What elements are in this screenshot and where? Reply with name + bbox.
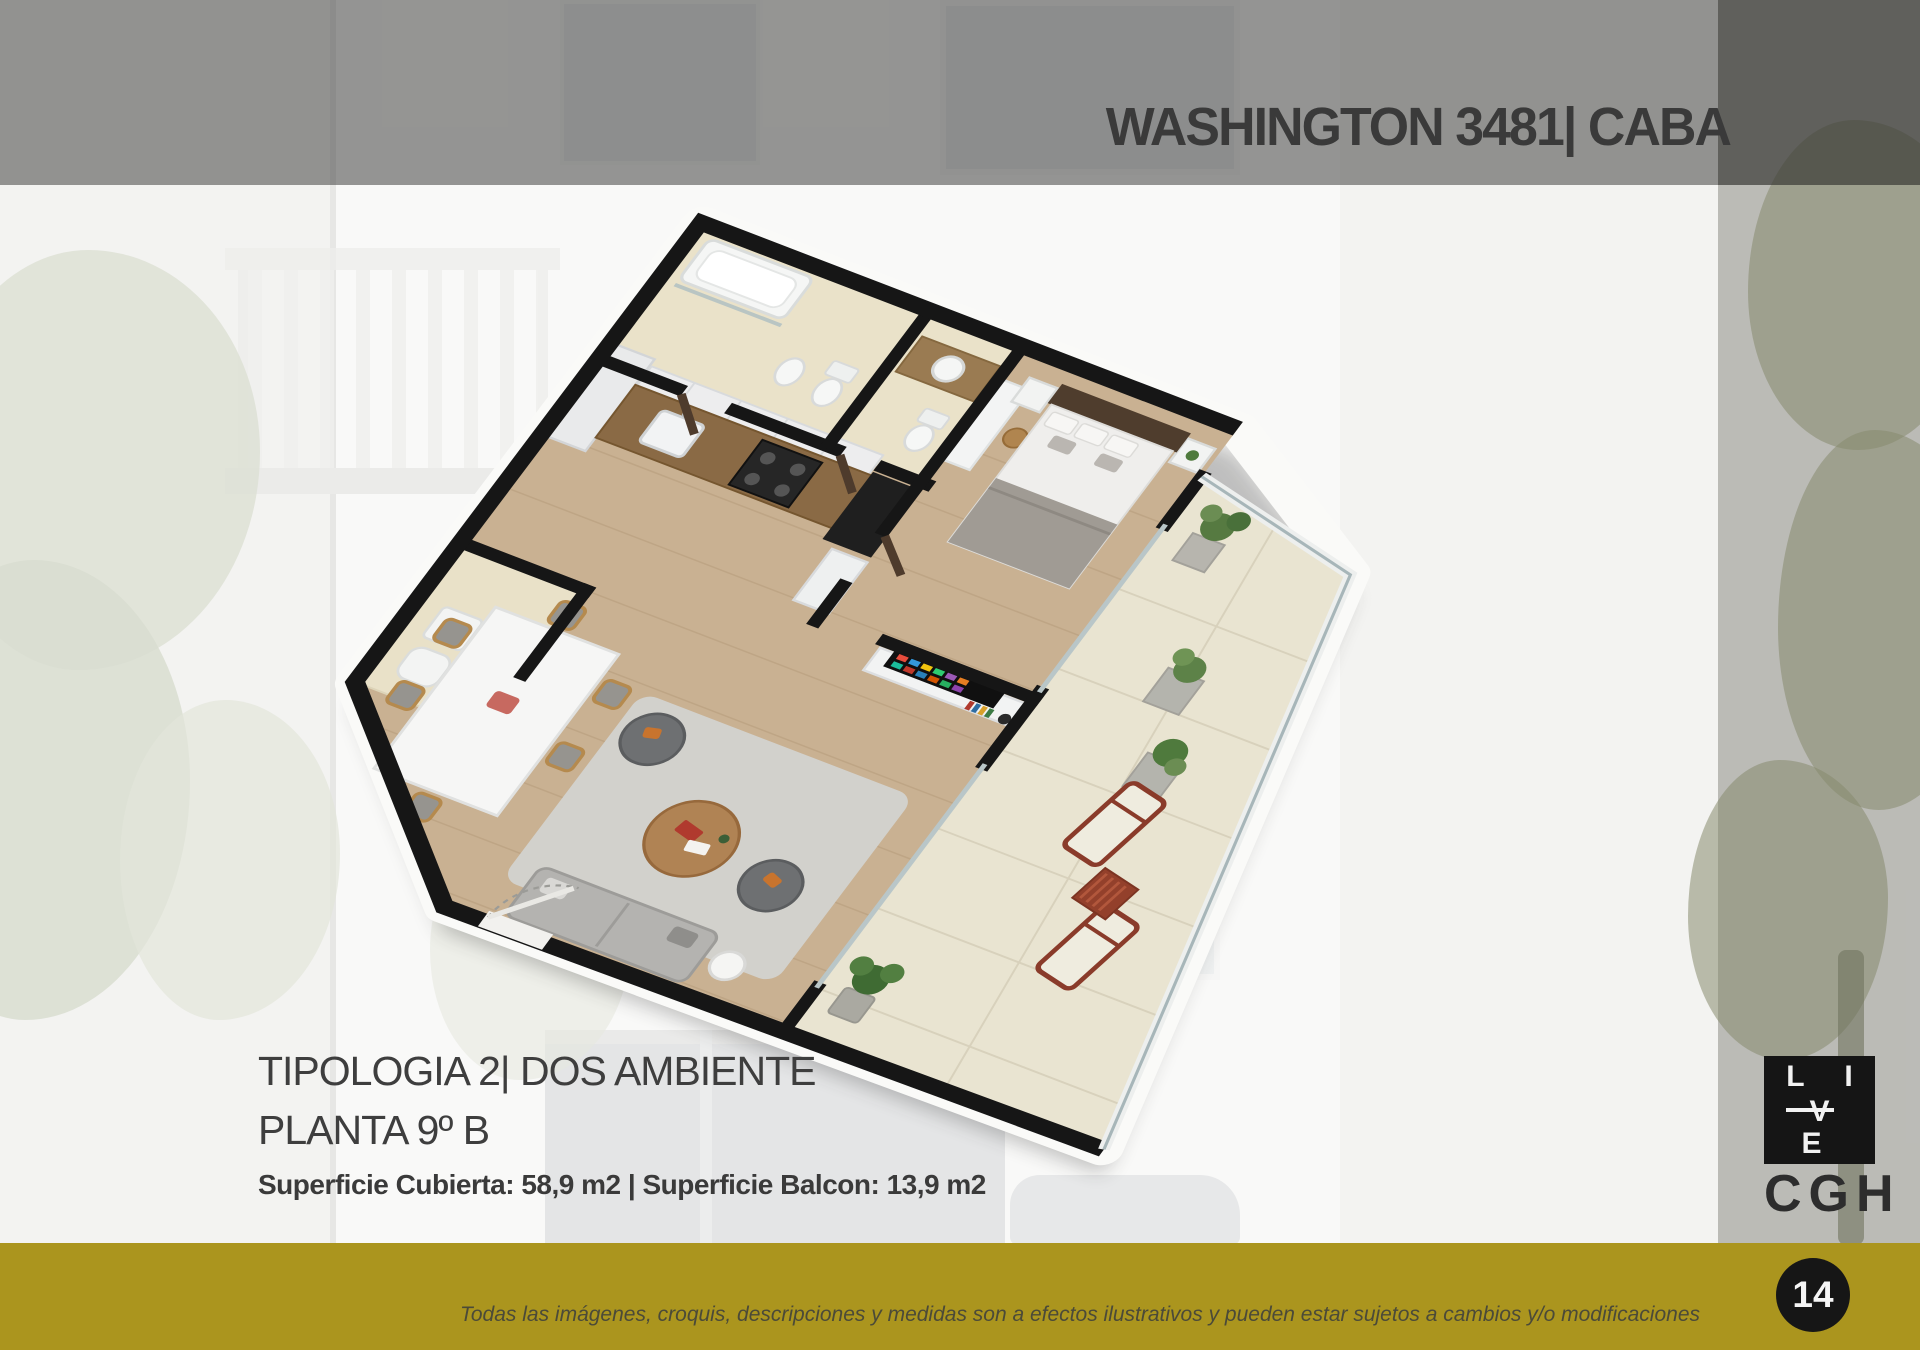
live-logo-row2: V E xyxy=(1764,1096,1875,1159)
live-logo-row1: L I xyxy=(1770,1061,1868,1093)
surfaces-label: Superficie Cubierta: 58,9 m2 | Superfici… xyxy=(258,1169,986,1201)
typology-label: TIPOLOGIA 2| DOS AMBIENTE xyxy=(258,1042,986,1101)
footer-disclaimer: Todas las imágenes, croquis, descripcion… xyxy=(0,1303,1700,1327)
slide-page: WASHINGTON 3481| CABA xyxy=(0,0,1920,1350)
footer-bar xyxy=(0,1243,1920,1350)
brand-logo: L I V E CGH xyxy=(1764,1056,1894,1220)
cgh-wordmark: CGH xyxy=(1764,1168,1894,1220)
live-logo-bar xyxy=(1786,1108,1834,1112)
page-number-badge: 14 xyxy=(1776,1258,1850,1332)
plan-caption: TIPOLOGIA 2| DOS AMBIENTE PLANTA 9º B Su… xyxy=(258,1042,986,1201)
floor-label: PLANTA 9º B xyxy=(258,1101,986,1160)
live-logo-square: L I V E xyxy=(1764,1056,1875,1164)
